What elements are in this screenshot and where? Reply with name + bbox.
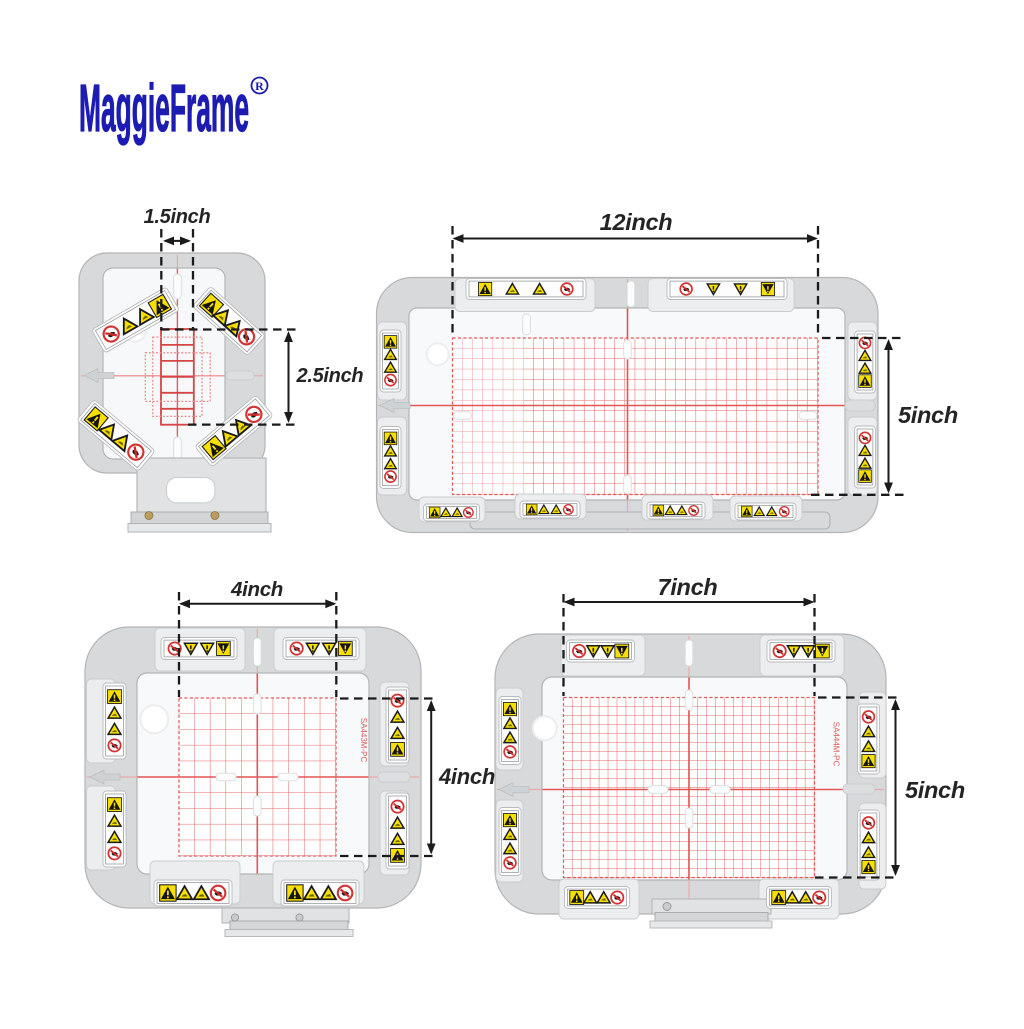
svg-text:2.5inch: 2.5inch [296,365,364,387]
svg-text:R: R [255,79,264,93]
svg-text:5inch: 5inch [905,777,965,803]
svg-text:4inch: 4inch [230,578,283,601]
svg-text:SA443M-PC: SA443M-PC [359,718,368,763]
svg-text:MaggieFrame: MaggieFrame [79,71,249,146]
svg-text:SA444M-PC: SA444M-PC [832,722,841,767]
svg-text:5inch: 5inch [898,402,958,428]
svg-text:7inch: 7inch [658,574,718,600]
svg-text:12inch: 12inch [600,209,673,235]
svg-text:4inch: 4inch [438,764,495,789]
svg-text:1.5inch: 1.5inch [144,206,211,228]
